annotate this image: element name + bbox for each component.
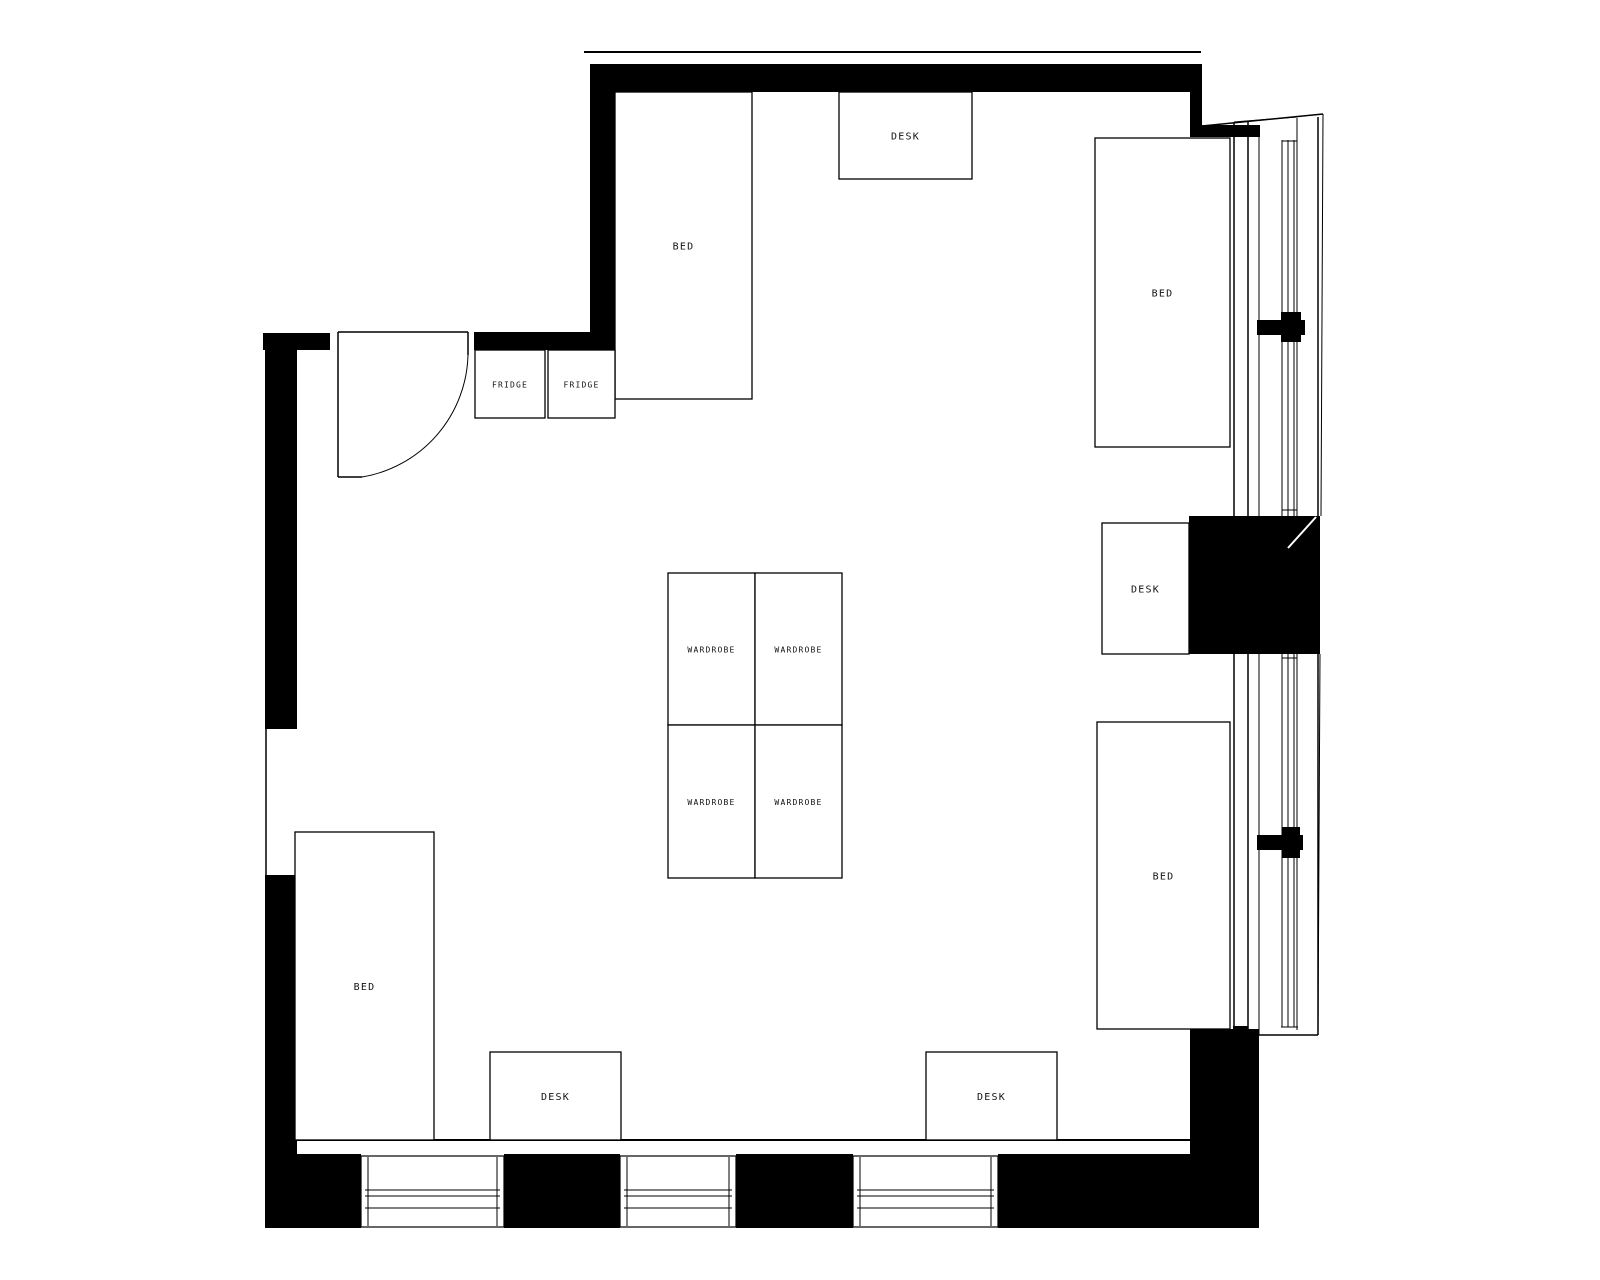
left-wall-upper (265, 333, 297, 729)
bottom-window-3 (853, 1156, 998, 1227)
fridge-2-label: FRIDGE (563, 381, 599, 390)
window-outer-slant-top (1321, 114, 1323, 516)
bed-top-left-label: BED (673, 242, 695, 253)
desk-bottom-right-label: DESK (977, 1092, 1006, 1103)
bottom-wall-seg4 (998, 1154, 1190, 1228)
right-wall-lower (1190, 1029, 1259, 1228)
bottom-wall-seg1 (265, 1154, 361, 1228)
bed-bottom-right-label: BED (1153, 872, 1175, 883)
top-right-step-horizontal (1202, 125, 1260, 137)
desk-right-label: DESK (1131, 585, 1160, 596)
window-mullion-cross-1-v (1281, 312, 1301, 342)
floor-plan-canvas: BEDDESKFRIDGEFRIDGEWARDROBEWARDROBEWARDR… (0, 0, 1600, 1280)
wardrobe-4-label: WARDROBE (774, 798, 822, 807)
top-left-corner-wall (590, 92, 615, 333)
wardrobe-1-label: WARDROBE (687, 646, 735, 655)
desk-bottom-left-label: DESK (541, 1092, 570, 1103)
bed-top-right-label: BED (1152, 289, 1174, 300)
wardrobe-3-label: WARDROBE (687, 798, 735, 807)
entry-right-wall (474, 332, 615, 350)
bottom-wall-seg3 (736, 1154, 853, 1228)
top-right-step-vertical (1190, 64, 1202, 137)
bottom-wall-seg2 (504, 1154, 620, 1228)
top-wall (590, 64, 1190, 92)
floor-plan: BEDDESKFRIDGEFRIDGEWARDROBEWARDROBEWARDR… (0, 0, 1600, 1280)
desk-top-center-label: DESK (891, 132, 920, 143)
bed3-corner-cap (1233, 1026, 1248, 1034)
fridge-1-label: FRIDGE (492, 381, 528, 390)
window-mullion-cross-2-v (1282, 827, 1300, 858)
window-pier-block (1189, 516, 1320, 654)
bed-bottom-left-label: BED (354, 982, 376, 993)
window-head-slant-2 (1234, 117, 1297, 122)
bottom-window-2 (620, 1156, 736, 1227)
entry-door-swing-arc-icon (362, 355, 468, 477)
wardrobe-2-label: WARDROBE (774, 646, 822, 655)
bottom-window-1 (361, 1156, 504, 1227)
